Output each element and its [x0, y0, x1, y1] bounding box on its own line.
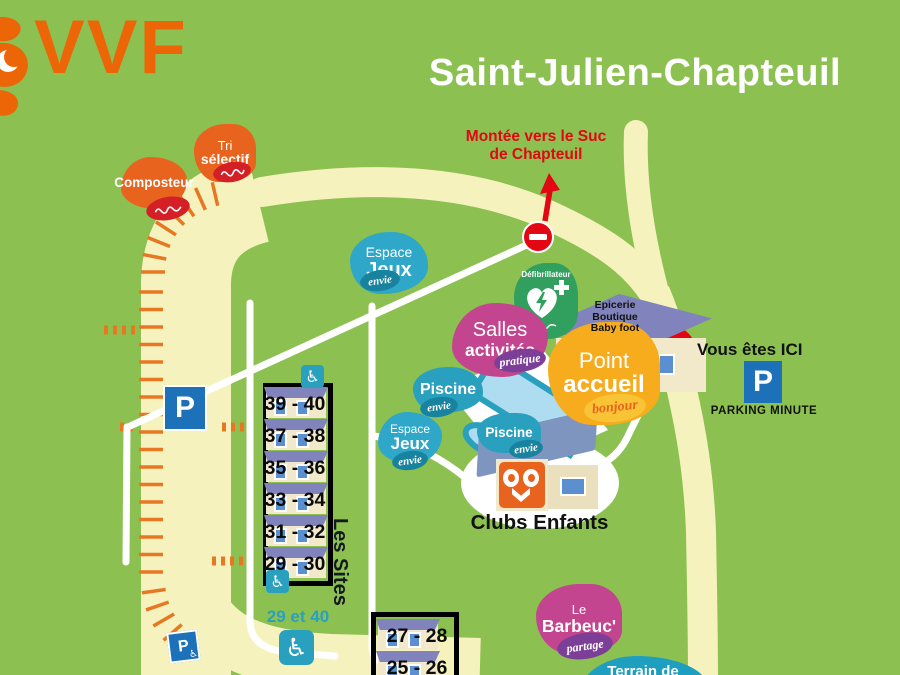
vvf-mascot-icon	[0, 16, 38, 116]
site-number: 33 - 34	[252, 489, 338, 512]
window	[658, 354, 675, 375]
window	[560, 477, 586, 496]
site-number: 35 - 36	[252, 457, 338, 480]
wheelchair-icon: ♿	[279, 630, 314, 665]
site-number: 31 - 32	[252, 521, 338, 544]
sites-box-25-28: 27 - 28 25 - 26	[371, 612, 459, 675]
parking-sign: P	[163, 385, 207, 431]
site-number: 25 - 26	[380, 657, 454, 675]
resort-map: VVF Saint-Julien-Chapteuil Montée vers l…	[0, 0, 900, 675]
clubs-enfants-label: Clubs Enfants	[452, 511, 627, 535]
owl-beak	[512, 488, 530, 502]
vvf-logo: VVF	[34, 10, 188, 86]
map-base-layer	[0, 0, 900, 675]
wheelchair-icon: ♿	[301, 365, 324, 388]
montee-sign: Montée vers le Suc de Chapteuil	[430, 128, 642, 164]
site-number: 29 - 30	[252, 553, 338, 576]
site-number: 37 - 38	[252, 425, 338, 448]
wheelchair-icon: ♿	[188, 648, 198, 660]
page-title: Saint-Julien-Chapteuil	[398, 52, 872, 95]
montee-line1: Montée vers le Suc	[430, 128, 642, 146]
no-entry-sign	[523, 222, 553, 252]
wheelchair-icon: ♿	[266, 570, 289, 593]
montee-line2: de Chapteuil	[430, 146, 642, 164]
les-sites-label: Les Sites	[328, 518, 351, 606]
accessible-parking-sign: P ♿	[166, 629, 201, 664]
services-label: Epicerie Boutique Baby foot	[576, 300, 654, 335]
owl-face-icon	[499, 462, 545, 508]
parking-minute-label: PARKING MINUTE	[706, 405, 822, 417]
house-front	[496, 459, 548, 511]
accessible-sites-note: 29 et 40	[258, 607, 338, 627]
site-number: 39 - 40	[252, 393, 338, 416]
house-side	[548, 465, 598, 509]
parking-minute-sign: P	[744, 361, 782, 403]
site-number: 27 - 28	[380, 625, 454, 648]
you-are-here-label: Vous êtes ICI	[697, 340, 803, 360]
